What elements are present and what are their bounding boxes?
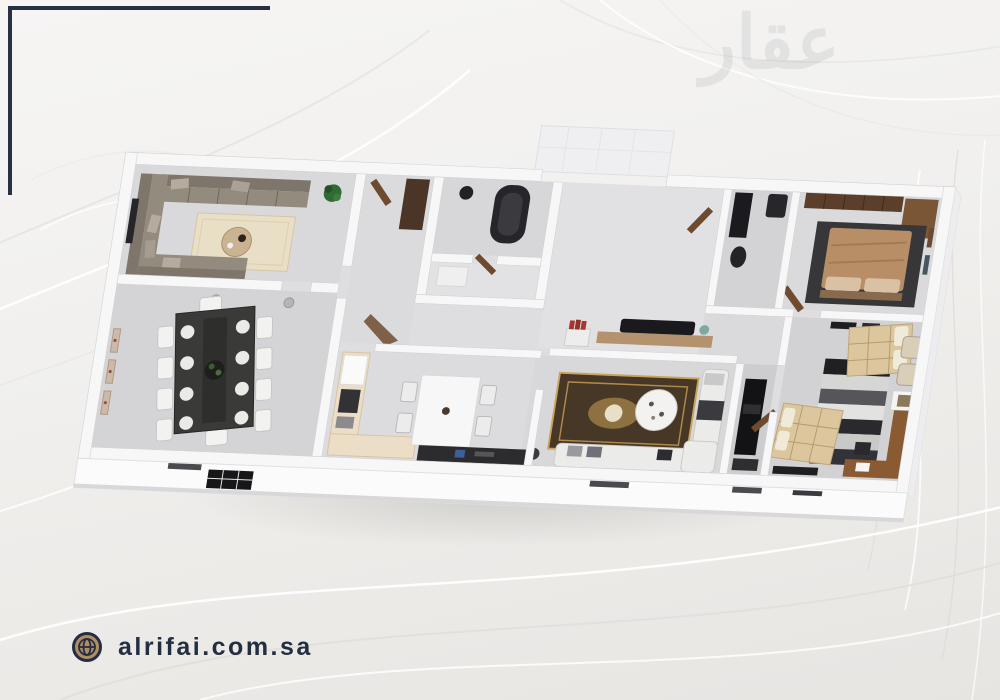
entrance-porch xyxy=(535,126,675,177)
floor-plan-svg xyxy=(43,103,978,562)
watermark-text: عقار xyxy=(700,6,840,80)
website-label: alrifai.com.sa xyxy=(118,633,313,662)
globe-icon xyxy=(71,631,103,663)
footer-brand: alrifai.com.sa xyxy=(71,629,313,665)
floor-plan xyxy=(43,103,978,562)
page: { "watermark": { "text": "عقار", "color"… xyxy=(0,0,1000,700)
